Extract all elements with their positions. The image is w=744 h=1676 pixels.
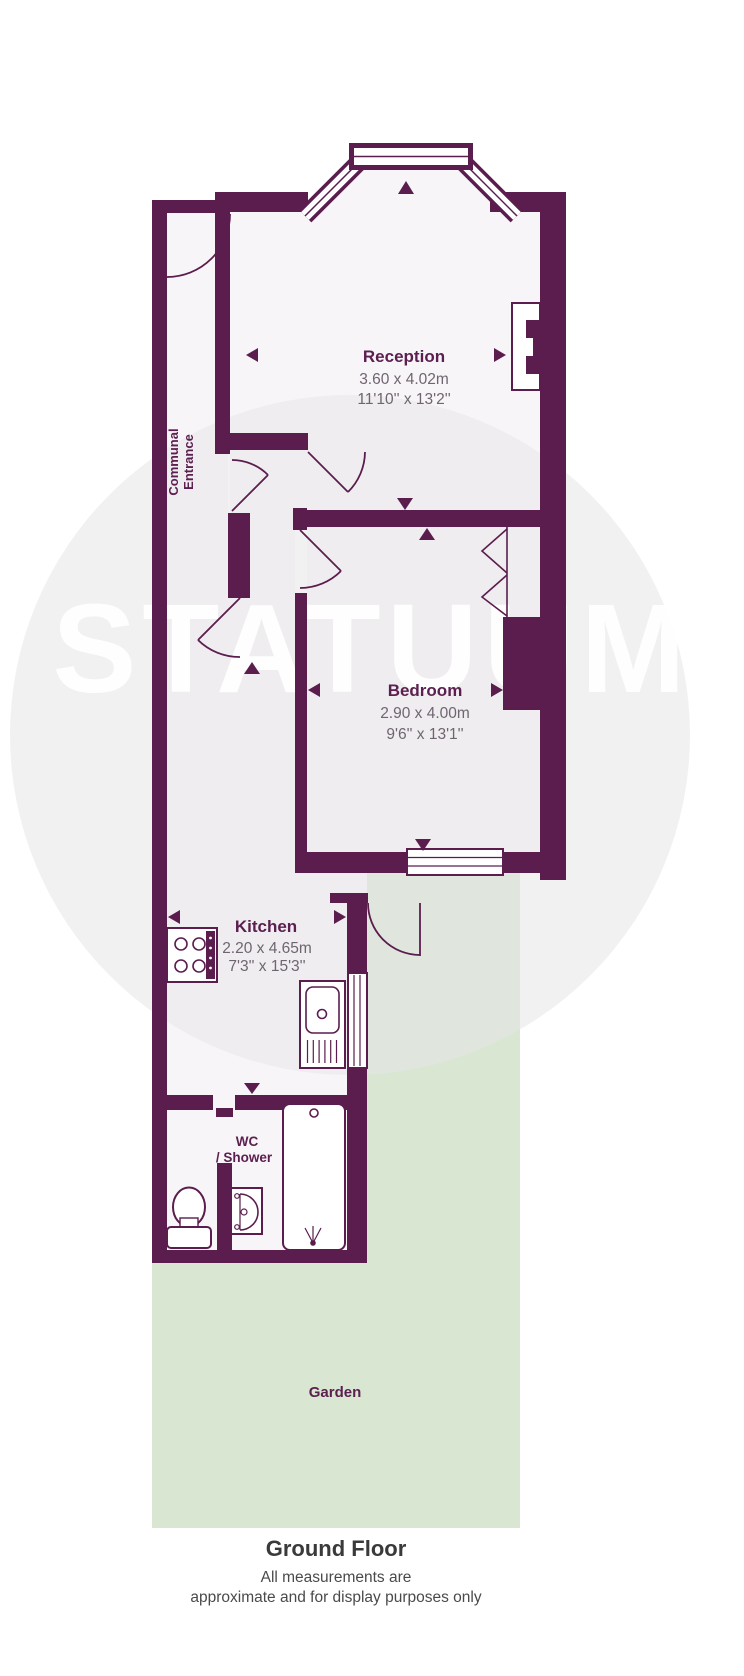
shower-tray-icon: [283, 1104, 345, 1250]
wc-door-gap: [213, 1095, 235, 1110]
communal-entrance-label-line2: Entrance: [181, 434, 196, 490]
wall-hall-stub: [230, 433, 308, 450]
wc-door-leaf: [216, 1108, 233, 1117]
kitchen-imperial: 7'3'' x 15'3'': [228, 958, 305, 975]
wall-reception-top-left: [230, 192, 308, 212]
reception-imperial: 11'10'' x 13'2'': [357, 391, 450, 408]
watermark-text: STATUUM: [52, 578, 691, 719]
wash-basin-icon: [231, 1188, 262, 1234]
bedroom-label: Bedroom: [388, 681, 463, 700]
wall-garden-stub: [330, 893, 368, 903]
wc-label-line2: / Shower: [216, 1150, 273, 1165]
communal-entrance-label-line1: Communal: [166, 428, 181, 495]
kitchen-label: Kitchen: [235, 917, 297, 936]
wall-right-outer: [540, 192, 566, 880]
sink-icon: [300, 981, 345, 1068]
floor-title: Ground Floor: [266, 1536, 407, 1561]
disclaimer-line2: approximate and for display purposes onl…: [190, 1589, 481, 1606]
wall-corridor-right: [228, 513, 250, 598]
kitchen-window: [348, 973, 367, 1068]
reception-label: Reception: [363, 347, 445, 366]
wall-kitchen-right: [347, 903, 367, 1263]
wall-wc-partition: [217, 1163, 232, 1250]
reception-metric: 3.60 x 4.02m: [359, 371, 449, 388]
wall-bedroom-chimney: [503, 617, 540, 710]
wall-bedroom-left: [295, 593, 307, 853]
fireplace: [512, 303, 540, 390]
disclaimer-line1: All measurements are: [261, 1569, 412, 1586]
kitchen-metric: 2.20 x 4.65m: [222, 940, 312, 957]
floorplan-page: STATUUM: [0, 0, 744, 1676]
footer: Ground Floor All measurements are approx…: [190, 1536, 481, 1606]
wc-label: WC: [236, 1134, 259, 1149]
bedroom-metric: 2.90 x 4.00m: [380, 705, 470, 722]
hob-icon: [167, 928, 217, 982]
garden-label: Garden: [309, 1384, 362, 1401]
bedroom-window: [407, 849, 503, 875]
bedroom-imperial: 9'6'' x 13'1'': [386, 726, 463, 743]
wall-wc-bottom: [152, 1250, 367, 1263]
wall-reception-bedroom-divider: [293, 510, 566, 527]
floorplan-drawing: STATUUM: [0, 0, 744, 1676]
